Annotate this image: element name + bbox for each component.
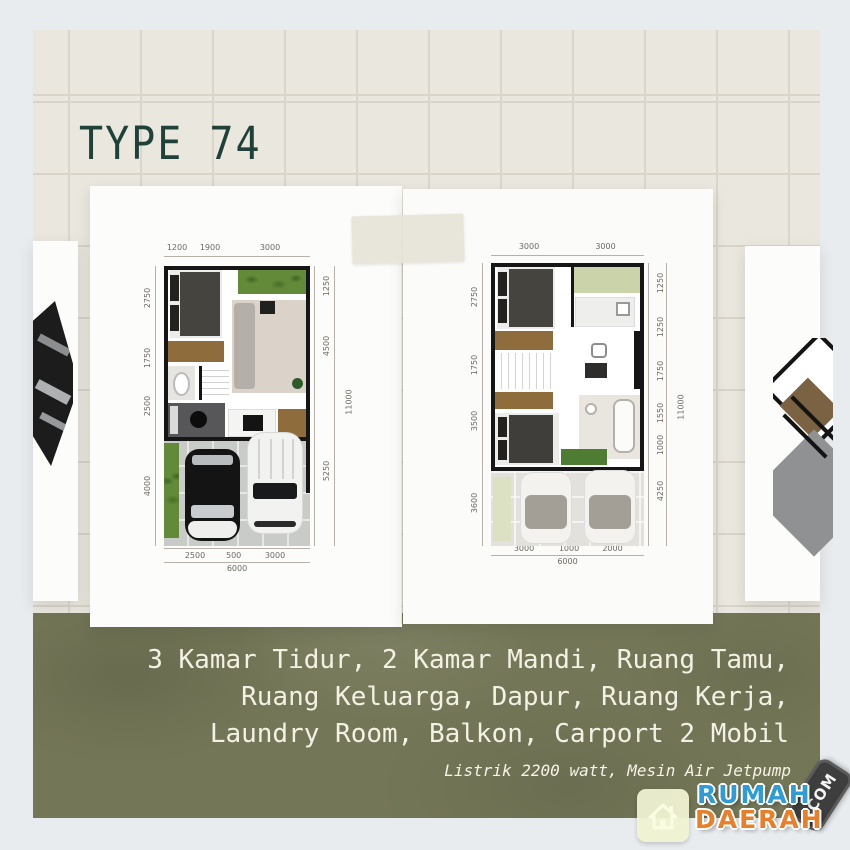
car-ghost-1 xyxy=(521,473,571,543)
spec-note: Listrik 2200 watt, Mesin Air Jetpump xyxy=(444,761,791,780)
dim-label: 3000 xyxy=(491,545,557,553)
brand-word-daerah: DAERAH xyxy=(695,805,824,834)
roof-rail xyxy=(258,439,260,479)
pillow xyxy=(498,299,507,323)
car-windshield xyxy=(253,483,297,499)
side-card-left xyxy=(33,241,78,601)
car-ghost-2 xyxy=(585,471,635,543)
dim-line xyxy=(164,548,310,549)
car-grill xyxy=(254,521,296,527)
bed xyxy=(509,415,553,463)
desk xyxy=(585,363,607,378)
plan-floor2-house xyxy=(491,263,644,471)
sink xyxy=(585,403,597,415)
plant xyxy=(292,378,303,389)
bed xyxy=(180,272,220,336)
dim-line xyxy=(155,266,156,546)
side-card-right xyxy=(745,246,820,601)
card-seam xyxy=(401,216,403,624)
poster: TYPE 74 1200 1900 3000 2750 1750 2 xyxy=(0,0,850,850)
dim-line xyxy=(334,266,335,546)
dim-label: 2750 xyxy=(471,287,479,307)
render-detail xyxy=(35,379,71,405)
dim-line xyxy=(491,255,644,256)
round-table xyxy=(190,411,207,428)
sofa xyxy=(234,303,255,389)
car-black xyxy=(185,449,240,541)
dim-label: 6000 xyxy=(491,558,644,566)
bathtub xyxy=(613,399,635,453)
plan-floor1-house xyxy=(164,266,310,441)
dim-label: 1900 xyxy=(190,244,230,252)
dim-label: 3500 xyxy=(471,411,479,431)
bed xyxy=(509,269,553,327)
dim-label: 1750 xyxy=(471,355,479,375)
dim-line xyxy=(164,562,310,563)
wall-stub xyxy=(634,331,640,389)
pillow xyxy=(498,417,507,437)
dim-label: 1250 xyxy=(657,273,665,293)
dim-label: 3000 xyxy=(240,552,310,560)
car-windshield xyxy=(191,505,234,518)
dim-label: 1750 xyxy=(657,361,665,381)
roof-rail xyxy=(270,439,272,479)
page-title: TYPE 74 xyxy=(79,118,262,170)
dim-label: 1250 xyxy=(657,317,665,337)
bedroom-1 xyxy=(170,270,222,338)
car-hood xyxy=(188,521,237,538)
washer xyxy=(616,302,630,316)
isometric-render-fragment xyxy=(773,338,833,568)
house-icon xyxy=(645,798,681,834)
dim-label: 3000 xyxy=(230,244,310,252)
dim-label: 11000 xyxy=(346,389,354,414)
garden-strip xyxy=(493,477,511,541)
dim-label: 4500 xyxy=(323,336,331,356)
dim-label: 3600 xyxy=(471,493,479,513)
carport xyxy=(164,441,310,546)
description-line-1: 3 Kamar Tidur, 2 Kamar Mandi, Ruang Tamu… xyxy=(147,645,789,675)
cabinet xyxy=(170,406,178,434)
dim-label: 1250 xyxy=(323,276,331,296)
pillow xyxy=(170,275,179,301)
isometric-render-fragment xyxy=(33,301,73,466)
dim-label: 1750 xyxy=(144,348,152,368)
roof-rail xyxy=(282,439,284,479)
side-table xyxy=(260,301,275,314)
dim-label: 4000 xyxy=(144,476,152,496)
dim-label: 1200 xyxy=(164,244,190,252)
dim-label: 1550 xyxy=(657,403,665,423)
media-room xyxy=(168,403,225,437)
wardrobe xyxy=(495,331,553,350)
pillow xyxy=(498,272,507,296)
car-rear-window xyxy=(192,455,233,465)
carport-ghost xyxy=(491,471,644,546)
balcony xyxy=(573,267,640,293)
toilet xyxy=(173,372,190,396)
chair xyxy=(591,343,607,358)
wardrobe xyxy=(495,392,553,409)
brand-logo-tile xyxy=(637,789,689,842)
dim-line xyxy=(164,256,310,257)
stove xyxy=(243,415,263,431)
dim-label: 2500 xyxy=(164,552,226,560)
washi-tape xyxy=(351,214,464,265)
dim-label: 3000 xyxy=(491,243,567,251)
laundry-room xyxy=(575,297,635,327)
dim-label: 3000 xyxy=(567,243,644,251)
dim-label: 1000 xyxy=(657,435,665,455)
render-detail xyxy=(37,333,71,356)
dim-label: 500 xyxy=(226,552,240,560)
pillow xyxy=(170,305,179,331)
car-roof xyxy=(589,495,631,529)
stairs xyxy=(495,353,553,389)
bathroom xyxy=(168,366,195,400)
car-white xyxy=(248,433,302,533)
dim-label: 5250 xyxy=(323,461,331,481)
dim-line xyxy=(482,263,483,546)
garden-strip xyxy=(164,443,179,538)
car-roof xyxy=(525,495,567,529)
stairs xyxy=(199,366,229,400)
wall-stub xyxy=(571,267,574,327)
dim-label: 2750 xyxy=(144,288,152,308)
bedroom-3 xyxy=(495,413,559,465)
dim-line xyxy=(491,555,644,556)
dim-label: 2500 xyxy=(144,396,152,416)
dim-line xyxy=(648,263,649,546)
planter xyxy=(238,270,306,294)
dim-label: 2000 xyxy=(581,545,644,553)
roof-rail xyxy=(292,439,294,479)
wardrobe xyxy=(168,341,224,362)
pillow xyxy=(498,440,507,460)
description-line-2: Ruang Keluarga, Dapur, Ruang Kerja, xyxy=(241,682,789,712)
render-slab xyxy=(773,429,833,556)
dim-line xyxy=(314,266,315,546)
bedroom-2 xyxy=(497,267,555,329)
wall-stub xyxy=(306,441,310,493)
dim-label: 11000 xyxy=(678,394,686,419)
dim-label: 1000 xyxy=(557,545,581,553)
plants xyxy=(561,449,607,465)
dim-label: 6000 xyxy=(164,565,310,573)
dim-label: 4250 xyxy=(657,481,665,501)
description-line-3: Laundry Room, Balkon, Carport 2 Mobil xyxy=(210,719,789,749)
dim-line xyxy=(666,263,667,546)
render-detail xyxy=(39,412,71,433)
